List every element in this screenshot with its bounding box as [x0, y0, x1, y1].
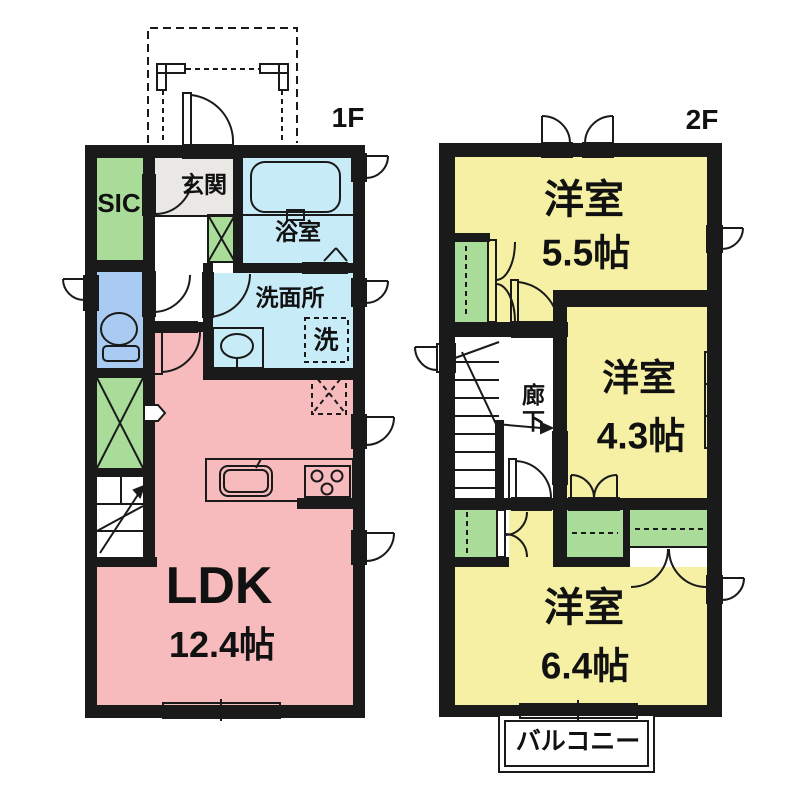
bedroom-5-5-side-window [707, 226, 743, 252]
closet-5-5-doors [466, 240, 515, 322]
bedroom-6-4-side-window [707, 576, 744, 603]
washroom-window [352, 279, 388, 306]
ldk-side-window-upper [352, 415, 394, 448]
door-direction-arrow [144, 405, 165, 421]
label-ldk-size: 12.4帖 [169, 627, 275, 663]
ldk-side-window-lower [352, 531, 394, 564]
plan-linework [0, 0, 800, 800]
closet-4-3-doors [569, 475, 619, 533]
label-bedroom-6-4: 洋室 [544, 588, 624, 628]
balcony-sliding-door [520, 700, 637, 722]
bedroom-5-5-top-window [542, 116, 613, 157]
label-bedroom-6-4-size: 6.4帖 [541, 648, 629, 685]
ldk-door [153, 322, 200, 374]
floorplan: 1F SIC 玄関 浴室 洗面所 洗 LDK 12.4帖 2F 洋室 5.5帖 … [0, 0, 800, 800]
label-bedroom-4-3: 洋室 [602, 360, 676, 397]
label-bathroom: 浴室 [275, 221, 321, 244]
floor-label-1f: 1F [332, 104, 365, 132]
label-bedroom-5-5-size: 5.5帖 [542, 235, 630, 272]
label-washroom: 洗面所 [256, 287, 325, 310]
toilet-icon [101, 313, 139, 361]
stairwell-window [415, 344, 455, 372]
kitchen-counter [206, 459, 353, 501]
bedroom-4-3-sliding-window [705, 352, 721, 448]
label-balcony: バルコニー [516, 730, 641, 755]
floor-label-2f: 2F [686, 106, 719, 134]
stairs-1f [97, 477, 144, 553]
label-ldk: LDK [166, 560, 273, 612]
label-entrance: 玄関 [181, 174, 227, 197]
label-sic: SIC [97, 190, 140, 216]
label-corridor: 廊下 [520, 383, 543, 435]
label-laundry: 洗 [313, 329, 338, 354]
refrigerator-space [312, 372, 346, 414]
toilet-door [143, 272, 190, 316]
label-bedroom-4-3-size: 4.3帖 [597, 418, 685, 455]
bathtub-icon [243, 162, 353, 220]
label-bedroom-5-5: 洋室 [544, 180, 624, 220]
closet-6-4-left-doors [467, 510, 527, 557]
washroom-door [203, 273, 250, 317]
closet-x-marks [97, 215, 235, 468]
toilet-window [63, 276, 98, 310]
bathroom-window [352, 154, 388, 181]
closet-6-4-right-doors [630, 529, 708, 587]
bedroom-4-3-sliding-door [553, 432, 567, 484]
porch-outline [148, 28, 297, 143]
bedroom-6-4-door [509, 459, 551, 510]
washbasin-icon [213, 328, 263, 368]
ldk-sliding-window [163, 699, 280, 721]
entrance-door [183, 93, 233, 158]
stove-icon [305, 466, 350, 497]
bathroom-folding-door [303, 248, 347, 273]
bedroom-5-5-door [511, 280, 558, 337]
